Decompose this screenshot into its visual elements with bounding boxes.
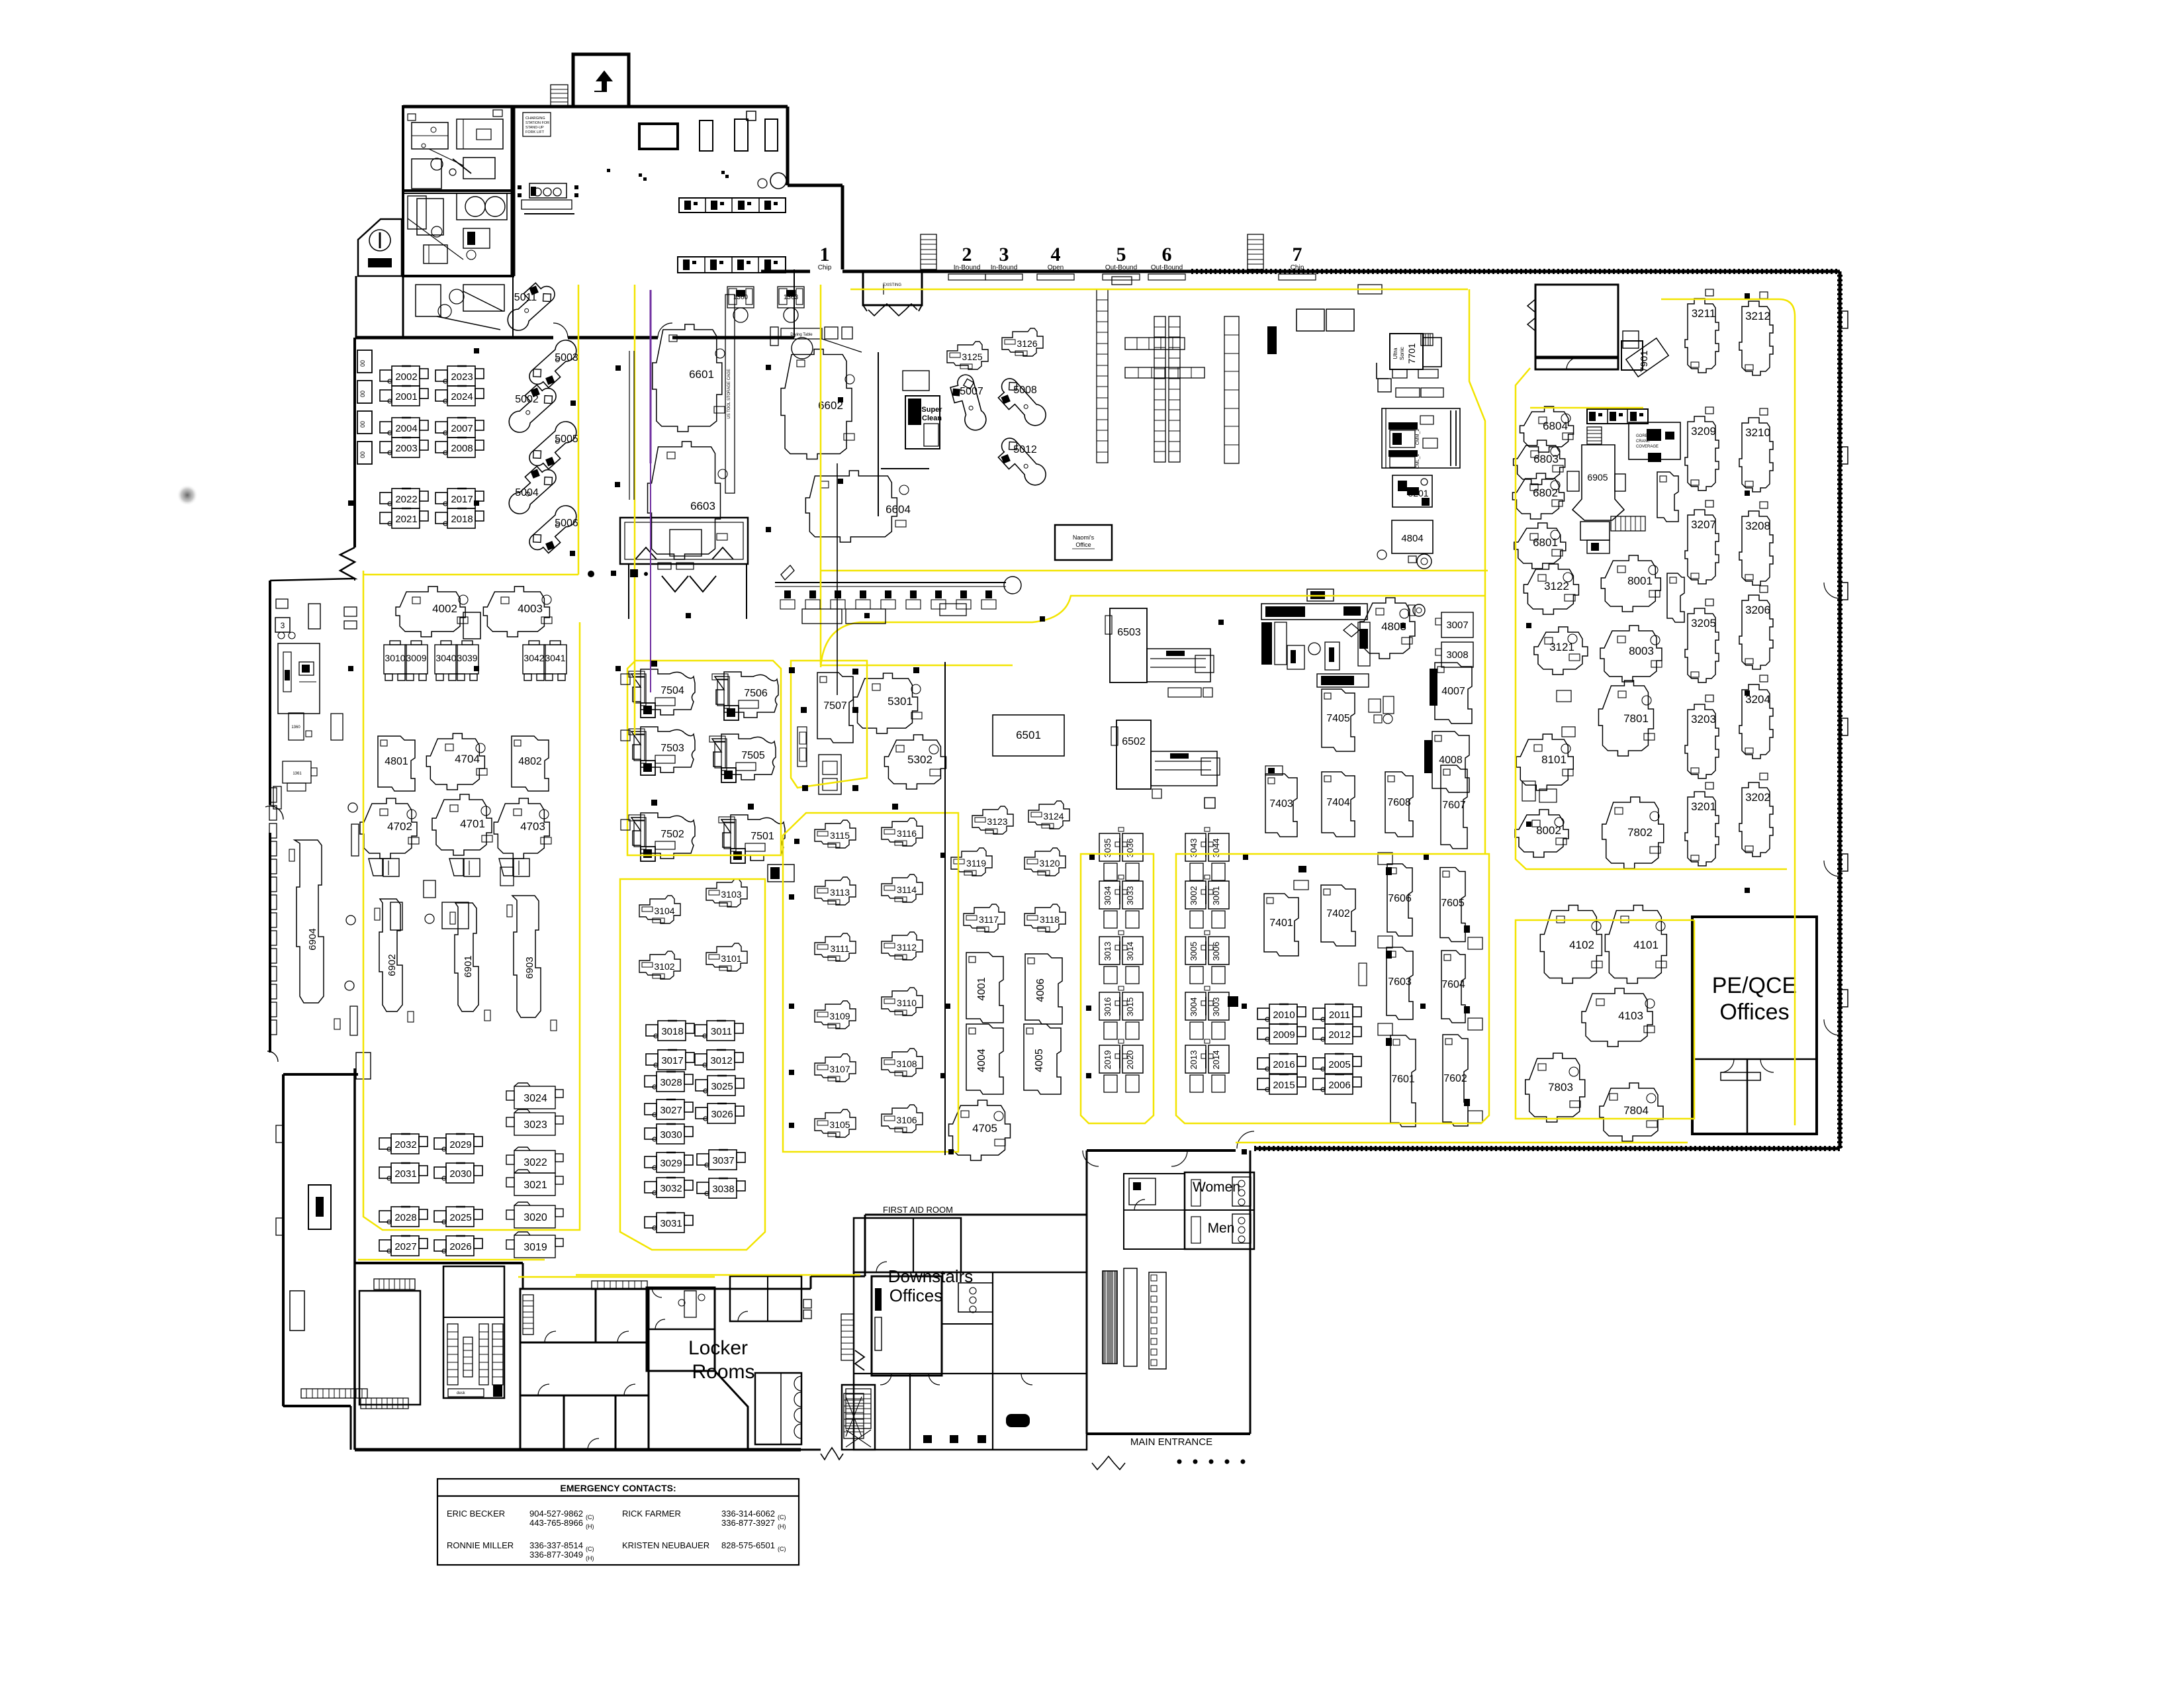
svg-text:7804: 7804 — [1623, 1104, 1649, 1117]
svg-text:Chip: Chip — [818, 264, 832, 271]
svg-text:6: 6 — [1162, 244, 1172, 265]
svg-text:3: 3 — [281, 621, 285, 630]
svg-text:2020: 2020 — [1125, 1051, 1135, 1070]
svg-text:6903: 6903 — [524, 957, 535, 978]
svg-text:7502: 7502 — [660, 829, 684, 840]
svg-text:7606: 7606 — [1388, 893, 1412, 904]
svg-text:FORK LIFT: FORK LIFT — [525, 130, 545, 134]
svg-text:3202: 3202 — [1745, 791, 1770, 804]
svg-text:(H): (H) — [586, 1555, 594, 1562]
svg-text:Office: Office — [1075, 541, 1091, 548]
svg-text:1360: 1360 — [733, 294, 749, 301]
svg-text:2019: 2019 — [1103, 1051, 1113, 1070]
svg-text:Offices: Offices — [1719, 1000, 1789, 1025]
svg-text:4101: 4101 — [1633, 939, 1659, 951]
svg-text:2017: 2017 — [451, 494, 473, 505]
svg-text:3026: 3026 — [711, 1109, 733, 1120]
svg-text:00: 00 — [359, 391, 366, 397]
svg-text:5007: 5007 — [960, 386, 983, 397]
svg-text:3210: 3210 — [1745, 426, 1770, 439]
svg-text:3034: 3034 — [1103, 886, 1113, 906]
svg-text:4704: 4704 — [455, 753, 480, 765]
svg-text:3015: 3015 — [1125, 998, 1135, 1017]
svg-text:3019: 3019 — [523, 1242, 547, 1253]
svg-text:2003: 2003 — [395, 443, 417, 454]
svg-text:5006: 5006 — [555, 518, 578, 529]
svg-text:3010: 3010 — [385, 653, 405, 663]
svg-text:3208: 3208 — [1745, 520, 1770, 532]
svg-text:4801: 4801 — [385, 756, 408, 767]
svg-text:7402: 7402 — [1326, 908, 1350, 919]
svg-text:COVERAGE: COVERAGE — [1636, 445, 1659, 449]
svg-text:3113: 3113 — [830, 887, 850, 898]
svg-text:US TOOL STORAGE CAGE: US TOOL STORAGE CAGE — [727, 369, 731, 418]
svg-text:FIRST AID ROOM: FIRST AID ROOM — [883, 1205, 953, 1215]
svg-text:2028: 2028 — [394, 1212, 416, 1223]
svg-text:5: 5 — [1116, 244, 1126, 265]
svg-text:5302: 5302 — [907, 753, 933, 766]
svg-text:3038: 3038 — [712, 1184, 734, 1195]
svg-text:3005: 3005 — [1189, 942, 1199, 961]
svg-text:3025: 3025 — [711, 1081, 733, 1092]
svg-text:3004: 3004 — [1189, 998, 1199, 1017]
svg-text:2031: 2031 — [394, 1168, 416, 1180]
svg-text:5301: 5301 — [887, 695, 913, 708]
svg-text:4102: 4102 — [1569, 939, 1594, 951]
svg-text:Sonic: Sonic — [1399, 347, 1405, 360]
svg-text:3027: 3027 — [660, 1105, 682, 1116]
svg-text:336-877-3049: 336-877-3049 — [529, 1550, 583, 1560]
svg-text:7: 7 — [1293, 244, 1302, 265]
svg-text:Out-Bound: Out-Bound — [1105, 264, 1137, 271]
svg-text:7602: 7602 — [1443, 1073, 1467, 1084]
svg-text:5012: 5012 — [1013, 444, 1037, 455]
svg-text:336-337-8514: 336-337-8514 — [529, 1540, 583, 1550]
svg-text:5008: 5008 — [1013, 385, 1037, 396]
svg-text:4702: 4702 — [387, 820, 412, 833]
svg-text:Chip: Chip — [1291, 264, 1304, 271]
svg-text:3002: 3002 — [1189, 886, 1199, 906]
svg-text:3201: 3201 — [1691, 800, 1716, 813]
svg-text:3111: 3111 — [830, 943, 849, 954]
svg-text:3029: 3029 — [660, 1158, 682, 1169]
svg-text:Drying Table: Drying Table — [790, 333, 813, 337]
svg-text:2001: 2001 — [395, 391, 417, 402]
svg-text:In-Bound: In-Bound — [991, 264, 1018, 271]
svg-text:1361: 1361 — [293, 772, 302, 776]
svg-text:2002: 2002 — [395, 371, 417, 383]
svg-text:3124: 3124 — [1043, 811, 1064, 821]
svg-text:4003: 4003 — [518, 602, 543, 615]
svg-text:6803: 6803 — [1533, 453, 1559, 465]
svg-text:4005: 4005 — [1034, 1049, 1045, 1072]
svg-text:3023: 3023 — [523, 1119, 547, 1131]
svg-text:7802: 7802 — [1627, 826, 1653, 839]
svg-text:3125: 3125 — [962, 352, 982, 362]
svg-text:2016: 2016 — [1273, 1059, 1295, 1070]
svg-text:Open: Open — [1048, 264, 1064, 271]
svg-text:Super: Super — [921, 406, 942, 414]
svg-text:6501: 6501 — [1016, 729, 1041, 741]
svg-text:4103: 4103 — [1618, 1009, 1643, 1022]
svg-text:3011: 3011 — [711, 1026, 732, 1037]
svg-text:8001: 8001 — [1627, 575, 1653, 587]
svg-text:5005: 5005 — [555, 434, 578, 445]
svg-text:6804: 6804 — [1543, 420, 1568, 432]
svg-text:7405: 7405 — [1326, 713, 1350, 724]
svg-text:7701: 7701 — [1406, 343, 1417, 363]
svg-text:7401: 7401 — [1269, 917, 1293, 929]
svg-text:Men: Men — [1208, 1221, 1235, 1236]
svg-text:3013: 3013 — [1103, 942, 1113, 961]
svg-text:3037: 3037 — [712, 1155, 734, 1166]
svg-text:336-877-3927: 336-877-3927 — [721, 1518, 775, 1528]
svg-text:7501: 7501 — [751, 831, 774, 842]
svg-text:3016: 3016 — [1103, 998, 1113, 1017]
svg-text:STATION FOR: STATION FOR — [525, 121, 549, 125]
svg-text:3006: 3006 — [1211, 942, 1221, 961]
svg-text:00: 00 — [359, 451, 366, 458]
svg-text:4802: 4802 — [518, 756, 542, 767]
svg-text:6904: 6904 — [307, 928, 318, 950]
svg-text:RICK FARMER: RICK FARMER — [622, 1509, 681, 1519]
svg-text:6905: 6905 — [1587, 472, 1608, 483]
svg-text:3126: 3126 — [1017, 338, 1037, 349]
svg-text:3020: 3020 — [523, 1212, 547, 1223]
svg-text:828-575-6501: 828-575-6501 — [721, 1540, 775, 1550]
svg-text:2018: 2018 — [451, 514, 473, 525]
svg-text:2007: 2007 — [451, 423, 473, 434]
svg-text:4004: 4004 — [976, 1049, 987, 1072]
svg-text:3103: 3103 — [721, 889, 741, 900]
svg-text:7803: 7803 — [1548, 1081, 1573, 1094]
svg-text:336-314-6062: 336-314-6062 — [721, 1509, 775, 1519]
svg-text:3032: 3032 — [660, 1183, 682, 1194]
svg-text:2029: 2029 — [449, 1139, 471, 1150]
svg-text:3209: 3209 — [1691, 425, 1716, 438]
svg-text:3018: 3018 — [661, 1026, 683, 1037]
svg-text:3021: 3021 — [523, 1180, 547, 1191]
svg-text:7505: 7505 — [741, 750, 765, 761]
svg-text:904-527-9862: 904-527-9862 — [529, 1509, 583, 1519]
svg-text:4002: 4002 — [432, 602, 457, 615]
svg-text:3115: 3115 — [830, 830, 850, 841]
svg-text:2005: 2005 — [1328, 1059, 1350, 1070]
svg-text:3028: 3028 — [660, 1077, 682, 1088]
svg-text:2011: 2011 — [1329, 1009, 1350, 1021]
svg-text:2014: 2014 — [1211, 1051, 1221, 1070]
svg-text:8201: 8201 — [1408, 488, 1428, 498]
svg-text:Downstairs: Downstairs — [888, 1266, 974, 1286]
svg-text:ERIC BECKER: ERIC BECKER — [447, 1509, 505, 1519]
svg-text:6902: 6902 — [387, 954, 398, 976]
svg-text:7607: 7607 — [1442, 800, 1466, 811]
svg-text:5011: 5011 — [514, 292, 537, 303]
svg-text:6901: 6901 — [463, 955, 474, 977]
svg-text:3119: 3119 — [966, 858, 986, 868]
svg-text:2024: 2024 — [451, 391, 473, 402]
svg-text:4804: 4804 — [1401, 533, 1423, 544]
svg-text:2: 2 — [962, 244, 972, 265]
svg-text:7608: 7608 — [1387, 797, 1411, 808]
svg-text:8002: 8002 — [1536, 824, 1561, 837]
svg-text:(H): (H) — [586, 1523, 594, 1530]
svg-text:3102: 3102 — [654, 961, 674, 972]
svg-text:3205: 3205 — [1691, 617, 1716, 630]
svg-text:3109: 3109 — [829, 1011, 850, 1021]
svg-text:CRANE: CRANE — [1636, 440, 1650, 444]
svg-text:2023: 2023 — [451, 371, 473, 383]
svg-text:443-765-8966: 443-765-8966 — [529, 1518, 583, 1528]
svg-text:7503: 7503 — [660, 743, 684, 754]
svg-text:3116: 3116 — [897, 828, 917, 839]
svg-text:2009: 2009 — [1273, 1029, 1295, 1041]
svg-text:7403: 7403 — [1269, 798, 1293, 810]
svg-text:3211: 3211 — [1692, 307, 1716, 320]
svg-text:7603: 7603 — [1388, 976, 1412, 988]
svg-text:3112: 3112 — [897, 942, 917, 953]
svg-text:2022: 2022 — [395, 494, 417, 505]
svg-text:2027: 2027 — [394, 1241, 416, 1252]
svg-text:4008: 4008 — [1439, 755, 1463, 766]
svg-text:1363: 1363 — [784, 294, 799, 301]
svg-text:MAIN ENTRANCE: MAIN ENTRANCE — [1130, 1436, 1212, 1448]
svg-text:2026: 2026 — [449, 1241, 471, 1252]
svg-text:6503: 6503 — [1117, 627, 1141, 638]
svg-text:3022: 3022 — [523, 1157, 547, 1168]
svg-text:4006: 4006 — [1035, 978, 1046, 1002]
svg-text:3117: 3117 — [979, 914, 999, 925]
svg-text:3110: 3110 — [897, 998, 917, 1008]
svg-text:2004: 2004 — [395, 423, 417, 434]
svg-text:6802: 6802 — [1533, 487, 1558, 499]
svg-text:6603: 6603 — [690, 500, 715, 512]
svg-text:7801: 7801 — [1623, 712, 1649, 725]
svg-text:Rooms: Rooms — [692, 1361, 754, 1383]
svg-text:1: 1 — [820, 244, 830, 265]
svg-text:3207: 3207 — [1691, 518, 1716, 531]
svg-text:2015: 2015 — [1273, 1080, 1295, 1091]
svg-text:6604: 6604 — [886, 503, 911, 516]
svg-text:7404: 7404 — [1326, 797, 1350, 808]
svg-text:3003: 3003 — [1211, 998, 1221, 1017]
svg-text:Out-Bound: Out-Bound — [1151, 264, 1183, 271]
svg-text:7507: 7507 — [823, 700, 847, 712]
svg-text:2010: 2010 — [1273, 1009, 1295, 1021]
svg-text:7506: 7506 — [744, 688, 768, 699]
svg-text:3206: 3206 — [1745, 604, 1770, 616]
svg-text:3001: 3001 — [1211, 886, 1221, 906]
svg-text:3009: 3009 — [406, 653, 426, 663]
svg-text:3030: 3030 — [660, 1129, 682, 1141]
svg-text:8101: 8101 — [1541, 753, 1567, 766]
svg-text:CMM_2: CMM_2 — [1416, 429, 1420, 445]
svg-text:7504: 7504 — [660, 685, 684, 696]
svg-text:2030: 2030 — [449, 1168, 471, 1180]
svg-text:7605: 7605 — [1441, 898, 1465, 909]
svg-text:6601: 6601 — [689, 368, 714, 381]
svg-text:3118: 3118 — [1040, 914, 1060, 925]
svg-text:PE/QCE: PE/QCE — [1712, 973, 1797, 998]
svg-text:3031: 3031 — [660, 1218, 682, 1229]
svg-text:3101: 3101 — [721, 953, 741, 964]
svg-text:desk: desk — [457, 1391, 466, 1395]
svg-text:3107: 3107 — [829, 1064, 850, 1074]
svg-text:(C): (C) — [586, 1546, 594, 1552]
svg-text:3122: 3122 — [1544, 580, 1569, 592]
svg-text:Locker: Locker — [688, 1337, 748, 1359]
svg-text:5002: 5002 — [515, 394, 539, 405]
svg-text:STAND-UP: STAND-UP — [525, 126, 544, 130]
svg-text:3120: 3120 — [1039, 858, 1060, 868]
svg-text:(C): (C) — [778, 1514, 786, 1521]
svg-text:3106: 3106 — [896, 1115, 917, 1125]
svg-text:7601: 7601 — [1391, 1074, 1415, 1085]
svg-text:3033: 3033 — [1125, 886, 1135, 906]
svg-text:6801: 6801 — [1533, 536, 1558, 549]
svg-text:2032: 2032 — [394, 1139, 416, 1150]
svg-text:00: 00 — [359, 360, 366, 367]
svg-text:3108: 3108 — [896, 1058, 917, 1069]
svg-text:3: 3 — [999, 244, 1009, 265]
svg-text:2021: 2021 — [395, 514, 417, 525]
svg-text:(C): (C) — [778, 1546, 786, 1552]
svg-text:3123: 3123 — [987, 816, 1007, 827]
svg-text:CML_1: CML_1 — [1416, 454, 1420, 469]
svg-text:4705: 4705 — [972, 1122, 997, 1135]
svg-text:3104: 3104 — [654, 906, 674, 916]
svg-text:3212: 3212 — [1745, 310, 1770, 322]
svg-text:3024: 3024 — [523, 1093, 547, 1104]
svg-text:4703: 4703 — [520, 820, 545, 833]
svg-text:(H): (H) — [778, 1523, 786, 1530]
svg-text:1360: 1360 — [291, 726, 300, 729]
svg-text:(C): (C) — [586, 1514, 594, 1521]
svg-text:8003: 8003 — [1629, 645, 1654, 657]
svg-text:Naomi's: Naomi's — [1073, 534, 1095, 541]
svg-text:4701: 4701 — [460, 818, 485, 830]
svg-text:4: 4 — [1051, 244, 1061, 265]
svg-text:3017: 3017 — [661, 1055, 683, 1066]
svg-text:4001: 4001 — [976, 977, 987, 1001]
svg-text:3042: 3042 — [523, 653, 544, 663]
svg-text:5003: 5003 — [555, 352, 578, 363]
svg-text:2006: 2006 — [1328, 1080, 1350, 1091]
svg-text:3105: 3105 — [829, 1119, 850, 1130]
svg-text:3121: 3121 — [1549, 641, 1574, 653]
svg-text:5004: 5004 — [515, 487, 539, 498]
svg-text:3040: 3040 — [435, 653, 456, 663]
svg-text:Clean: Clean — [922, 414, 942, 422]
svg-text:3203: 3203 — [1691, 713, 1716, 726]
svg-text:3008: 3008 — [1446, 649, 1468, 661]
svg-text:7901: 7901 — [1639, 350, 1650, 372]
svg-text:Women: Women — [1193, 1180, 1240, 1195]
svg-text:2012: 2012 — [1328, 1029, 1350, 1041]
svg-text:CHARGING: CHARGING — [525, 117, 545, 120]
svg-text:Offices: Offices — [889, 1286, 942, 1305]
svg-text:3014: 3014 — [1125, 942, 1135, 961]
svg-text:2025: 2025 — [449, 1212, 471, 1223]
svg-text:00: 00 — [359, 421, 366, 428]
svg-text:Ultra: Ultra — [1392, 348, 1398, 359]
svg-text:KRISTEN NEUBAUER: KRISTEN NEUBAUER — [622, 1540, 709, 1550]
svg-text:RONNIE MILLER: RONNIE MILLER — [447, 1540, 514, 1550]
svg-text:3114: 3114 — [897, 884, 917, 895]
svg-text:In-Bound: In-Bound — [954, 264, 981, 271]
svg-text:2013: 2013 — [1189, 1051, 1199, 1070]
svg-text:EMERGENCY CONTACTS:: EMERGENCY CONTACTS: — [560, 1483, 676, 1493]
svg-text:6502: 6502 — [1122, 736, 1146, 747]
svg-text:3007: 3007 — [1446, 620, 1468, 631]
svg-text:2008: 2008 — [451, 443, 473, 454]
svg-text:3039: 3039 — [457, 653, 477, 663]
svg-text:3041: 3041 — [545, 653, 565, 663]
svg-text:7604: 7604 — [1441, 979, 1465, 990]
svg-text:4007: 4007 — [1441, 686, 1465, 697]
svg-text:GORBEL: GORBEL — [1636, 434, 1653, 438]
svg-text:3012: 3012 — [710, 1055, 732, 1066]
svg-text:EXISTING: EXISTING — [883, 283, 901, 287]
